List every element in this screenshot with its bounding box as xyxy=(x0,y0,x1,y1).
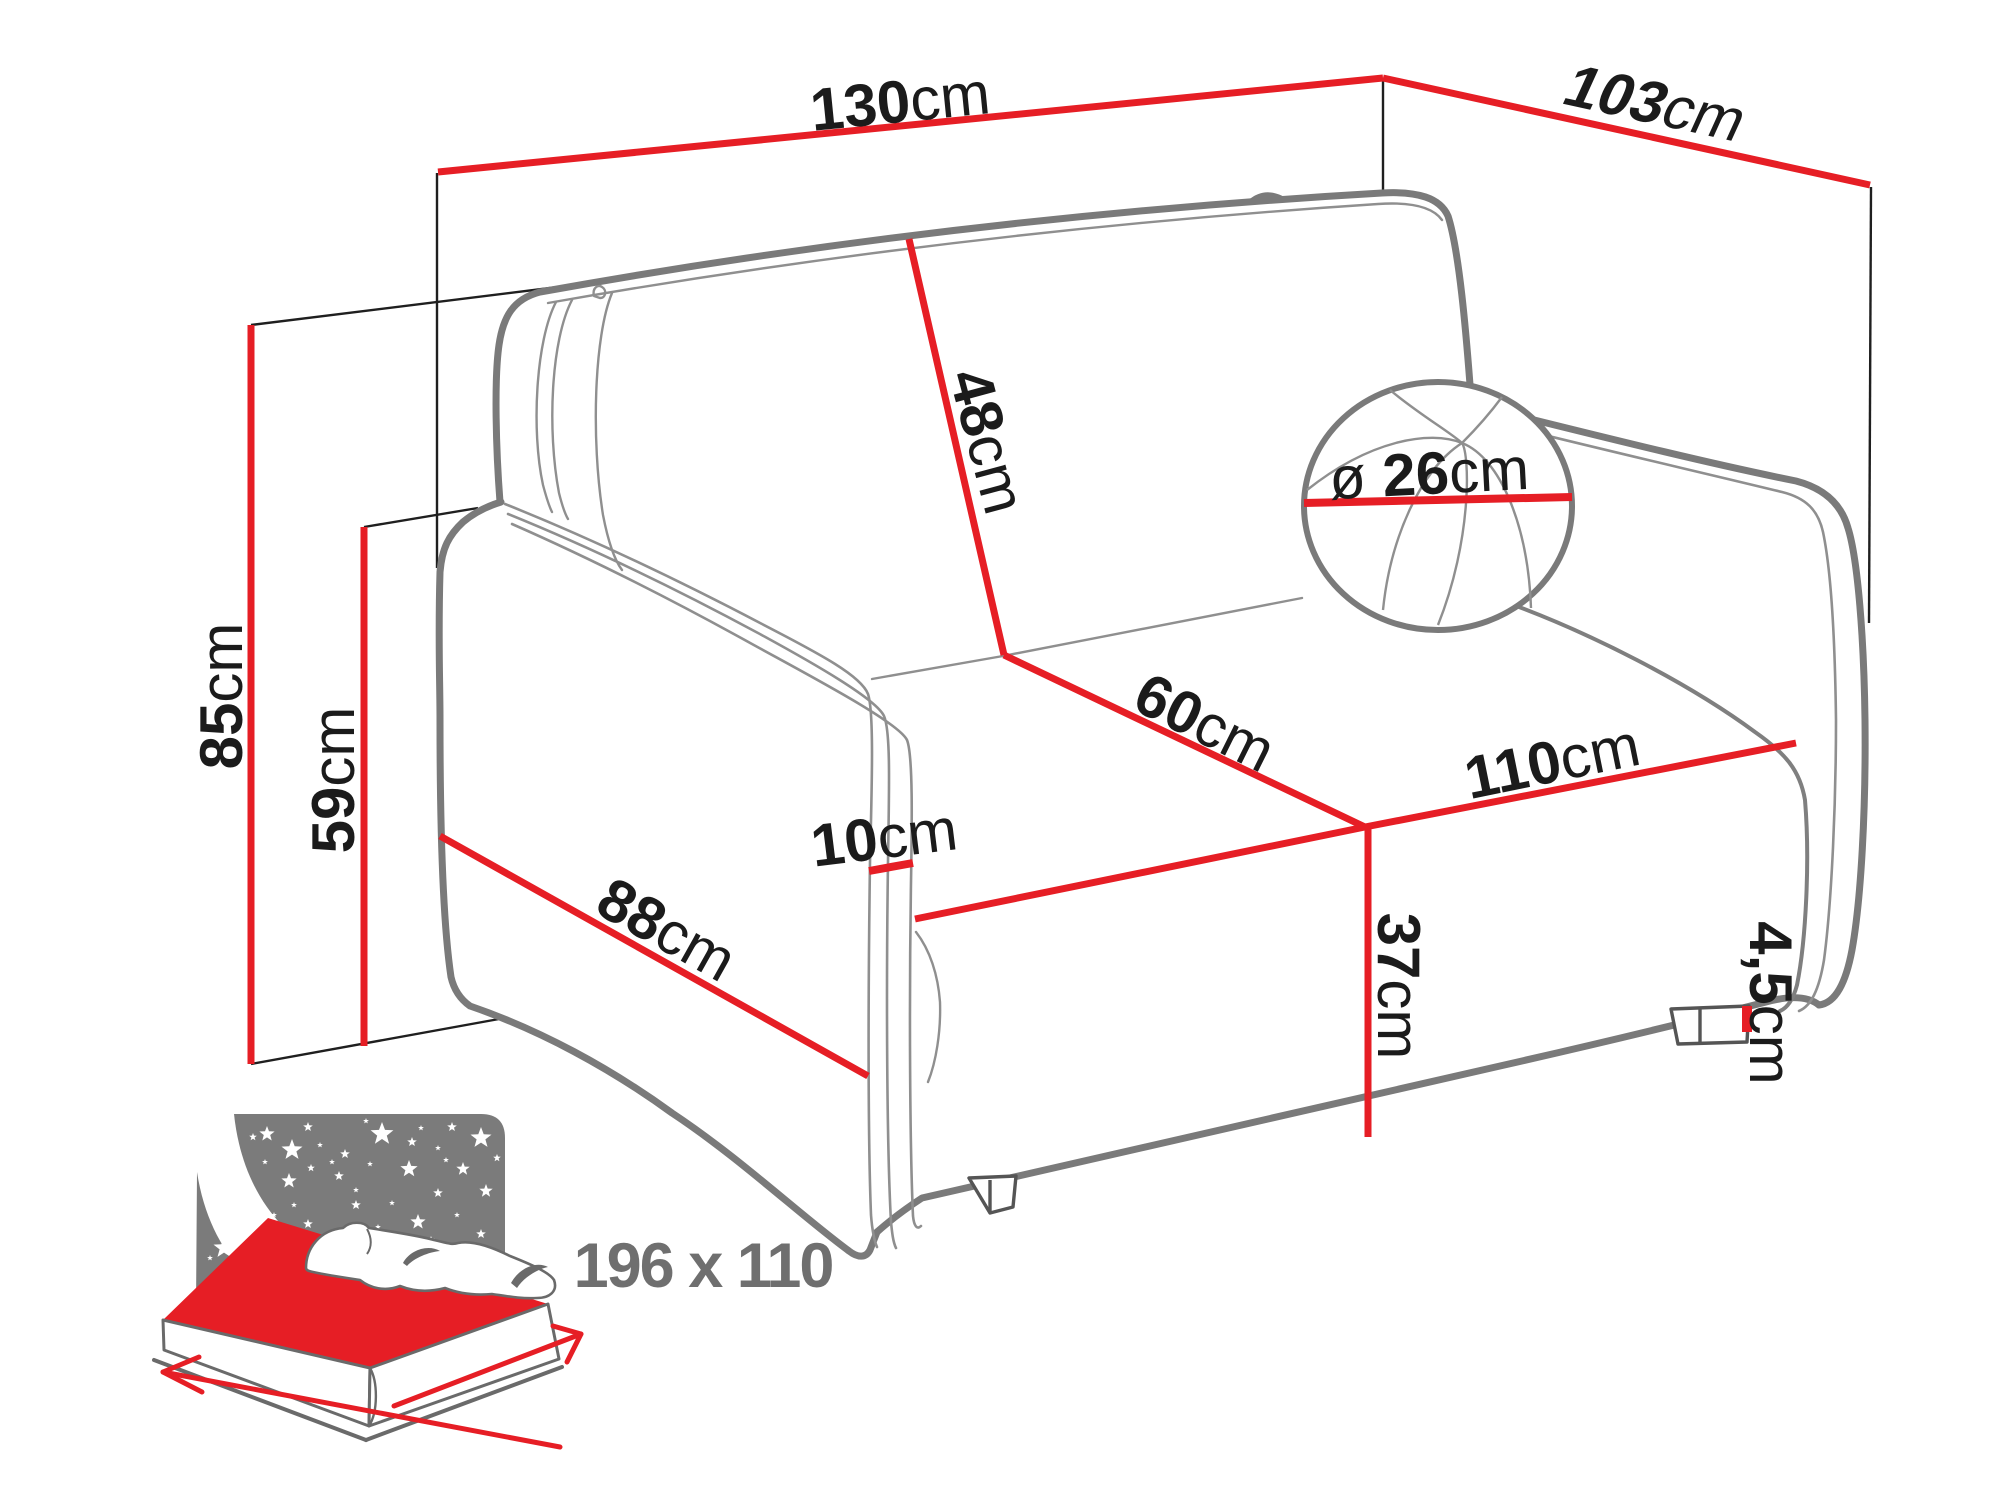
svg-text:4,5cm: 4,5cm xyxy=(1738,921,1805,1084)
svg-text:196 x 110: 196 x 110 xyxy=(574,1231,833,1301)
svg-text:85cm: 85cm xyxy=(188,623,255,770)
svg-text:37cm: 37cm xyxy=(1366,913,1433,1060)
svg-text:59cm: 59cm xyxy=(300,707,367,854)
svg-text:ø 26cm: ø 26cm xyxy=(1327,434,1530,511)
